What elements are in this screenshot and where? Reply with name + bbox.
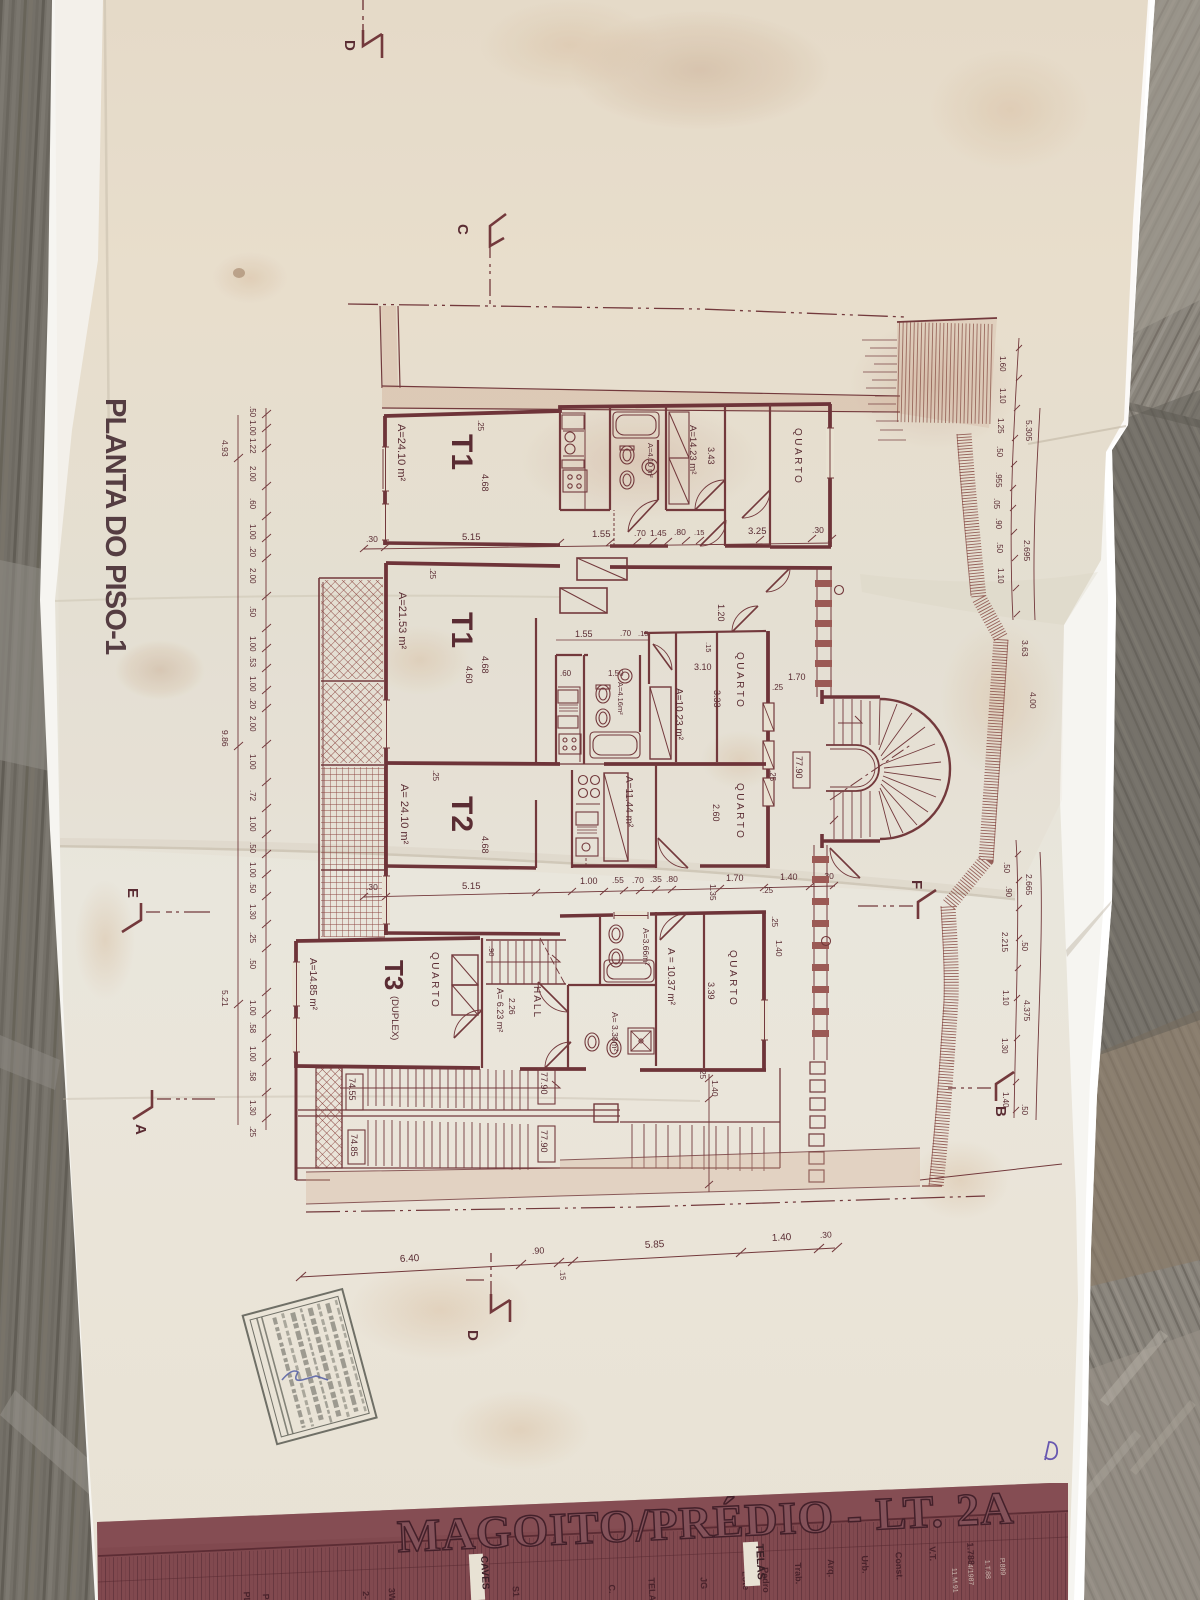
svg-text:2.26: 2.26 xyxy=(507,998,517,1015)
svg-text:1.40: 1.40 xyxy=(710,1080,720,1097)
svg-text:5.15: 5.15 xyxy=(462,532,481,543)
svg-text:.50: .50 xyxy=(248,406,257,418)
svg-text:1.30: 1.30 xyxy=(248,1100,257,1116)
svg-text:F: F xyxy=(908,880,925,889)
svg-text:A: A xyxy=(132,1124,149,1135)
svg-text:Arq.: Arq. xyxy=(826,1559,837,1577)
svg-text:1.40: 1.40 xyxy=(772,1232,792,1244)
svg-text:77.90: 77.90 xyxy=(539,1072,549,1095)
svg-text:1.00: 1.00 xyxy=(248,754,257,770)
svg-text:HALL: HALL xyxy=(531,986,542,1019)
svg-text:1.45: 1.45 xyxy=(650,528,667,538)
svg-text:.35: .35 xyxy=(650,874,662,884)
svg-text:1.40: 1.40 xyxy=(774,940,784,957)
svg-text:.55: .55 xyxy=(612,875,624,885)
svg-text:.72: .72 xyxy=(248,790,257,802)
svg-text:1.788: 1.788 xyxy=(965,1542,976,1565)
svg-text:.90: .90 xyxy=(487,946,496,956)
svg-text:A=11.44 m²: A=11.44 m² xyxy=(623,776,634,828)
svg-text:1.00: 1.00 xyxy=(248,1046,257,1062)
svg-text:1.00: 1.00 xyxy=(248,636,257,652)
svg-text:.58: .58 xyxy=(248,1070,257,1082)
svg-text:5.85: 5.85 xyxy=(645,1239,665,1251)
svg-text:.53: .53 xyxy=(248,656,257,668)
svg-text:.50: .50 xyxy=(995,446,1004,458)
svg-text:A=10.23 m²: A=10.23 m² xyxy=(673,688,684,741)
svg-text:74.55: 74.55 xyxy=(347,1078,357,1101)
svg-text:4.00: 4.00 xyxy=(1028,692,1038,709)
svg-text:1.35: 1.35 xyxy=(708,884,718,901)
svg-text:.50: .50 xyxy=(1020,1104,1029,1116)
svg-text:QUARTO: QUARTO xyxy=(429,952,440,1009)
svg-text:V.T.: V.T. xyxy=(927,1546,938,1561)
svg-text:TELAS: TELAS xyxy=(646,1577,657,1600)
svg-text:A=21.53 m²: A=21.53 m² xyxy=(396,592,408,650)
svg-text:1.40: 1.40 xyxy=(1001,1092,1010,1108)
svg-text:.20: .20 xyxy=(248,698,257,710)
svg-text:3.63: 3.63 xyxy=(1020,640,1030,657)
svg-text:A=4.10 m²: A=4.10 m² xyxy=(646,443,655,478)
svg-text:.20: .20 xyxy=(248,546,257,558)
svg-text:.90: .90 xyxy=(1004,886,1013,898)
svg-text:3.43: 3.43 xyxy=(706,447,716,465)
svg-text:1.T.88: 1.T.88 xyxy=(983,1560,991,1580)
svg-text:CAVES: CAVES xyxy=(478,1556,491,1591)
svg-text:D: D xyxy=(341,40,358,51)
svg-text:Const.: Const. xyxy=(893,1552,904,1580)
svg-text:1.00: 1.00 xyxy=(580,876,598,886)
svg-text:.50: .50 xyxy=(995,542,1004,554)
svg-text:JG: JG xyxy=(698,1577,709,1589)
svg-text:1.20: 1.20 xyxy=(716,604,726,622)
svg-text:9.86: 9.86 xyxy=(220,730,230,747)
svg-text:.80: .80 xyxy=(674,527,686,537)
svg-text:4.93: 4.93 xyxy=(220,440,230,457)
svg-text:A=3.66m²: A=3.66m² xyxy=(641,928,651,965)
svg-text:TELAS: TELAS xyxy=(753,1544,767,1581)
svg-text:PL.: PL. xyxy=(242,1591,253,1600)
svg-text:.90: .90 xyxy=(532,1245,545,1256)
svg-text:2.00: 2.00 xyxy=(248,568,257,584)
svg-text:(DUPLEX): (DUPLEX) xyxy=(389,996,400,1040)
svg-text:T1: T1 xyxy=(445,612,478,649)
svg-text:1.00: 1.00 xyxy=(248,816,257,832)
svg-text:A=14.85 m²: A=14.85 m² xyxy=(307,958,318,1011)
svg-text:3.25: 3.25 xyxy=(748,526,767,537)
svg-text:4.375: 4.375 xyxy=(1022,1000,1032,1022)
svg-text:PLANTA DO PISO-1: PLANTA DO PISO-1 xyxy=(99,398,131,655)
svg-text:11.M.91: 11.M.91 xyxy=(950,1568,958,1593)
svg-text:3.10: 3.10 xyxy=(694,662,712,672)
svg-text:4.60: 4.60 xyxy=(464,666,474,684)
svg-text:A= 6.23 m²: A= 6.23 m² xyxy=(495,988,505,1032)
svg-text:4.68: 4.68 xyxy=(480,656,490,674)
svg-text:2.00: 2.00 xyxy=(248,466,257,482)
svg-text:3.39: 3.39 xyxy=(706,982,716,1000)
svg-text:.15: .15 xyxy=(558,1270,568,1281)
svg-text:.50: .50 xyxy=(248,842,257,854)
svg-text:1.10: 1.10 xyxy=(996,568,1005,584)
svg-text:QUARTO: QUARTO xyxy=(734,783,745,840)
svg-text:4.68: 4.68 xyxy=(480,836,490,854)
svg-text:.25: .25 xyxy=(248,932,257,944)
svg-text:1.55: 1.55 xyxy=(575,629,593,639)
svg-text:Urb.: Urb. xyxy=(860,1555,871,1573)
svg-text:D: D xyxy=(464,1330,481,1341)
svg-text:.25: .25 xyxy=(770,916,779,928)
svg-text:A= 24.10 m²: A= 24.10 m² xyxy=(398,784,410,845)
svg-text:77.90: 77.90 xyxy=(539,1130,549,1153)
svg-text:.70: .70 xyxy=(620,629,632,638)
svg-text:77.90: 77.90 xyxy=(794,756,804,779)
svg-text:.50: .50 xyxy=(1002,862,1011,874)
svg-text:1.30: 1.30 xyxy=(248,904,257,920)
svg-text:A=4.16m²: A=4.16m² xyxy=(616,682,625,715)
svg-text:1.00: 1.00 xyxy=(248,420,257,436)
svg-text:.25: .25 xyxy=(431,770,440,782)
svg-text:C.: C. xyxy=(607,1584,617,1593)
svg-text:.60: .60 xyxy=(248,498,257,510)
svg-text:2.215: 2.215 xyxy=(1000,932,1009,953)
svg-text:.70: .70 xyxy=(632,875,644,885)
svg-text:1.30: 1.30 xyxy=(1000,1038,1009,1054)
svg-text:.50: .50 xyxy=(248,606,257,618)
svg-text:Trab.: Trab. xyxy=(793,1562,804,1584)
svg-text:QUARTO: QUARTO xyxy=(792,428,803,485)
svg-text:.80: .80 xyxy=(666,874,678,884)
svg-text:.25: .25 xyxy=(428,568,437,580)
svg-text:4.68: 4.68 xyxy=(480,474,490,492)
svg-text:1.70: 1.70 xyxy=(788,672,806,682)
svg-text:5.15: 5.15 xyxy=(462,881,481,892)
svg-text:2.665: 2.665 xyxy=(1024,874,1034,896)
svg-text:.15: .15 xyxy=(694,528,704,537)
svg-text:1.00: 1.00 xyxy=(248,524,257,540)
svg-text:P1: P1 xyxy=(261,1594,272,1600)
svg-text:.90: .90 xyxy=(994,518,1003,530)
svg-text:1.22: 1.22 xyxy=(248,438,257,454)
svg-text:1.60: 1.60 xyxy=(998,356,1007,372)
svg-text:.25: .25 xyxy=(772,683,784,692)
svg-text:A=14.23 m²: A=14.23 m² xyxy=(687,425,698,474)
svg-text:.25: .25 xyxy=(248,1126,257,1138)
svg-text:.50: .50 xyxy=(248,882,257,894)
svg-text:1.25: 1.25 xyxy=(996,418,1005,434)
svg-text:1.10: 1.10 xyxy=(998,388,1007,404)
svg-text:5.21: 5.21 xyxy=(220,990,230,1007)
svg-text:T1: T1 xyxy=(445,434,478,471)
svg-text:QUARTO: QUARTO xyxy=(727,950,738,1007)
svg-text:5.305: 5.305 xyxy=(1024,420,1034,442)
svg-text:A = 10.37 m²: A = 10.37 m² xyxy=(665,948,676,1006)
svg-text:T3: T3 xyxy=(379,960,409,990)
svg-text:.25: .25 xyxy=(698,1068,707,1080)
svg-text:1.00: 1.00 xyxy=(248,1000,257,1016)
svg-text:.30: .30 xyxy=(812,525,824,535)
svg-text:.25: .25 xyxy=(768,770,777,782)
svg-text:1.55: 1.55 xyxy=(592,529,611,540)
svg-text:3.33: 3.33 xyxy=(712,690,722,708)
svg-text:.50: .50 xyxy=(1020,940,1029,952)
svg-text:.05: .05 xyxy=(992,498,1001,510)
svg-text:T2: T2 xyxy=(445,796,478,833)
svg-text:74.85: 74.85 xyxy=(349,1134,359,1157)
svg-text:2.60: 2.60 xyxy=(711,804,721,822)
svg-text:.60: .60 xyxy=(560,669,572,678)
svg-text:.15: .15 xyxy=(704,642,713,652)
svg-text:A= 3.38m²: A= 3.38m² xyxy=(610,1012,620,1052)
svg-text:1.70: 1.70 xyxy=(726,873,744,883)
svg-text:.25: .25 xyxy=(476,420,485,432)
svg-text:S1: S1 xyxy=(511,1586,522,1597)
svg-text:P.889: P.889 xyxy=(998,1558,1006,1576)
svg-text:E: E xyxy=(124,888,141,898)
svg-text:.30: .30 xyxy=(366,534,378,544)
svg-text:.30: .30 xyxy=(820,1229,833,1240)
svg-text:2.695: 2.695 xyxy=(1022,540,1032,562)
svg-text:.30: .30 xyxy=(366,882,378,892)
svg-text:2.00: 2.00 xyxy=(248,716,257,732)
svg-text:.25: .25 xyxy=(762,886,774,895)
svg-text:.955: .955 xyxy=(994,472,1003,488)
svg-text:3W: 3W xyxy=(387,1588,398,1600)
svg-text:2-: 2- xyxy=(361,1591,371,1599)
svg-text:B: B xyxy=(992,1106,1009,1117)
svg-text:4/1987: 4/1987 xyxy=(966,1564,974,1586)
svg-text:C: C xyxy=(454,224,471,235)
svg-text:.50: .50 xyxy=(248,958,257,970)
svg-text:1.10: 1.10 xyxy=(1001,990,1010,1006)
svg-text:1.40: 1.40 xyxy=(780,872,798,882)
svg-text:.70: .70 xyxy=(634,528,646,538)
svg-text:1.00: 1.00 xyxy=(248,676,257,692)
svg-text:6.40: 6.40 xyxy=(400,1253,420,1265)
svg-text:1.00: 1.00 xyxy=(248,862,257,878)
svg-text:.58: .58 xyxy=(248,1022,257,1034)
svg-text:QUARTO: QUARTO xyxy=(734,652,745,709)
svg-text:A=24.10 m²: A=24.10 m² xyxy=(395,424,407,482)
